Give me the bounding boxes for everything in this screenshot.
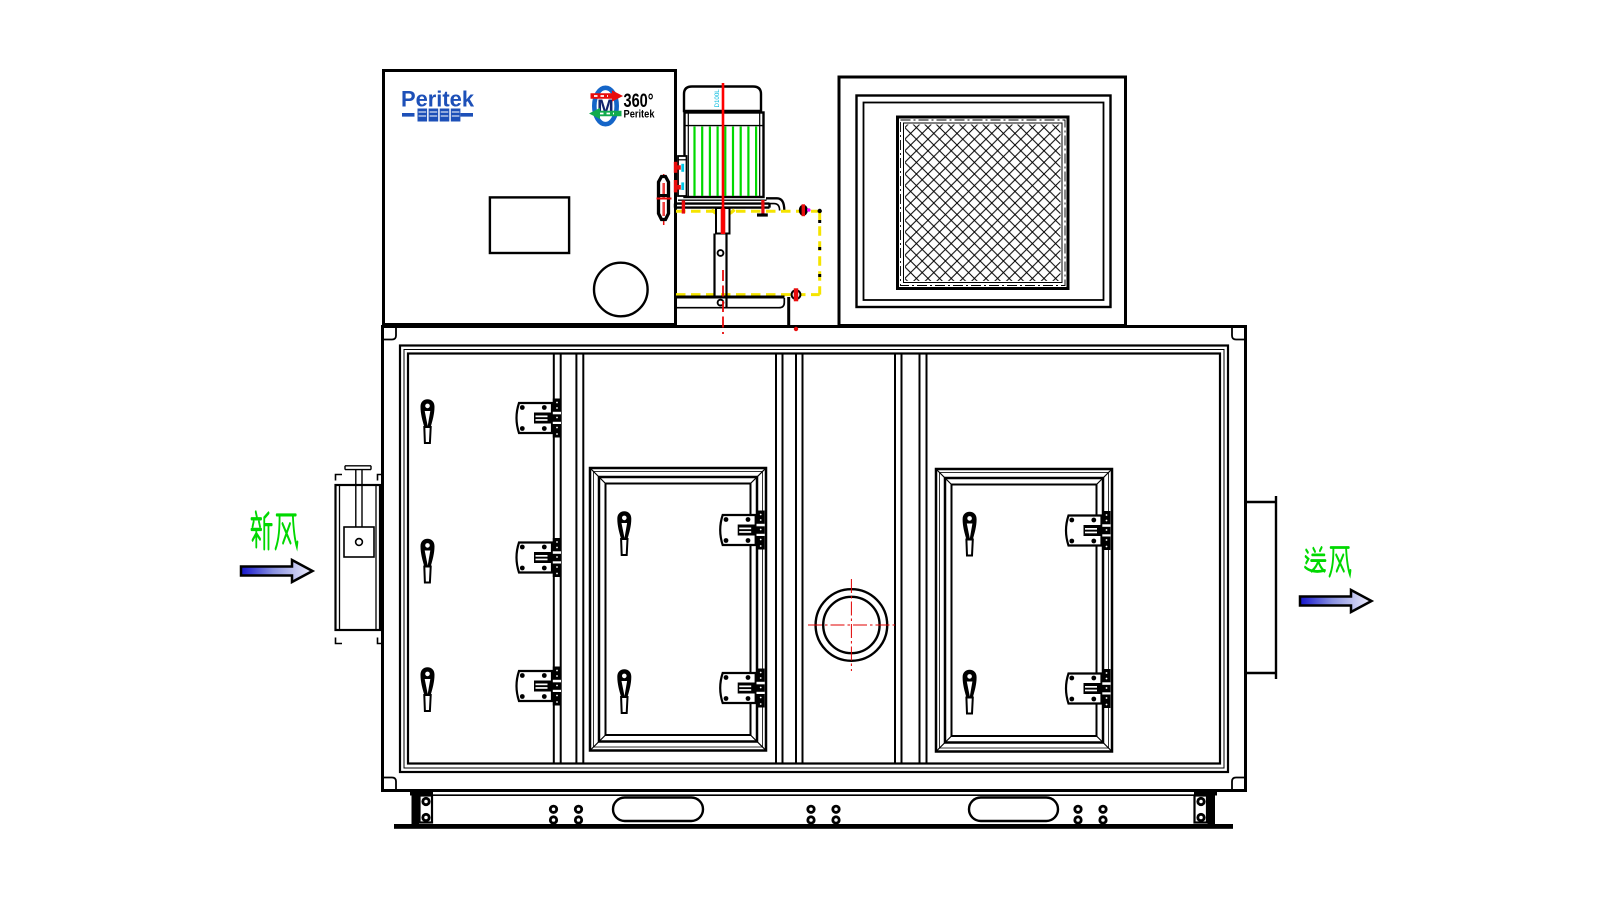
svg-text:Peritek: Peritek	[401, 87, 474, 112]
svg-text:D100L: D100L	[714, 89, 721, 108]
svg-text:Peritek: Peritek	[624, 109, 656, 121]
